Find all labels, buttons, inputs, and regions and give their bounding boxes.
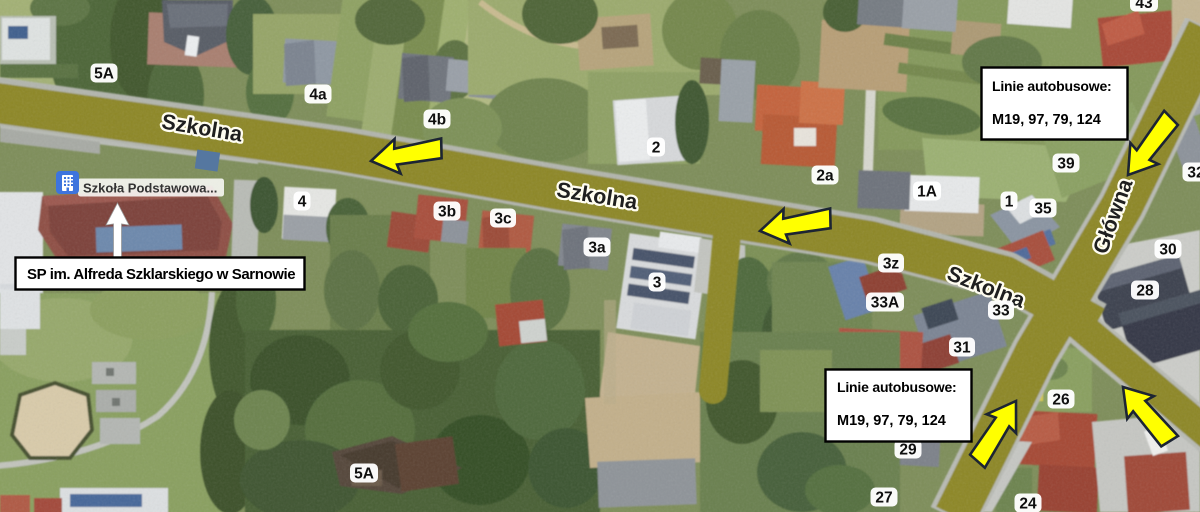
svg-text:SP im. Alfreda Szklarskiego w: SP im. Alfreda Szklarskiego w Sarnowie xyxy=(27,266,295,283)
svg-text:29: 29 xyxy=(899,442,917,459)
svg-text:35: 35 xyxy=(1034,201,1052,218)
svg-text:4: 4 xyxy=(298,194,307,211)
svg-text:4a: 4a xyxy=(309,87,327,104)
svg-text:39: 39 xyxy=(1057,156,1075,173)
svg-text:Szkoła Podstawowa...: Szkoła Podstawowa... xyxy=(83,181,217,196)
svg-text:M19, 97, 79, 124: M19, 97, 79, 124 xyxy=(992,112,1101,128)
svg-text:4b: 4b xyxy=(428,112,446,129)
svg-text:Linie autobusowe:: Linie autobusowe: xyxy=(992,78,1112,94)
svg-text:3c: 3c xyxy=(494,211,512,228)
svg-text:M19, 97, 79, 124: M19, 97, 79, 124 xyxy=(837,413,946,429)
svg-text:2: 2 xyxy=(652,140,661,157)
svg-text:3b: 3b xyxy=(438,204,456,221)
svg-text:33A: 33A xyxy=(871,295,899,312)
svg-text:5A: 5A xyxy=(354,466,374,483)
svg-text:3a: 3a xyxy=(588,240,606,257)
svg-text:5A: 5A xyxy=(94,66,114,83)
svg-text:3z: 3z xyxy=(883,256,900,273)
svg-text:24: 24 xyxy=(1019,496,1037,512)
svg-text:32: 32 xyxy=(1187,165,1200,182)
svg-text:Linie autobusowe:: Linie autobusowe: xyxy=(837,379,957,395)
svg-text:31: 31 xyxy=(953,340,971,357)
svg-text:1A: 1A xyxy=(917,184,937,201)
svg-text:26: 26 xyxy=(1052,392,1070,409)
svg-text:27: 27 xyxy=(875,490,892,507)
svg-text:2a: 2a xyxy=(816,168,834,185)
svg-text:1: 1 xyxy=(1005,194,1014,211)
svg-text:30: 30 xyxy=(1159,242,1176,259)
svg-text:3: 3 xyxy=(653,275,662,292)
svg-text:28: 28 xyxy=(1136,283,1154,300)
svg-text:33: 33 xyxy=(992,303,1010,320)
svg-text:43: 43 xyxy=(1135,0,1153,12)
